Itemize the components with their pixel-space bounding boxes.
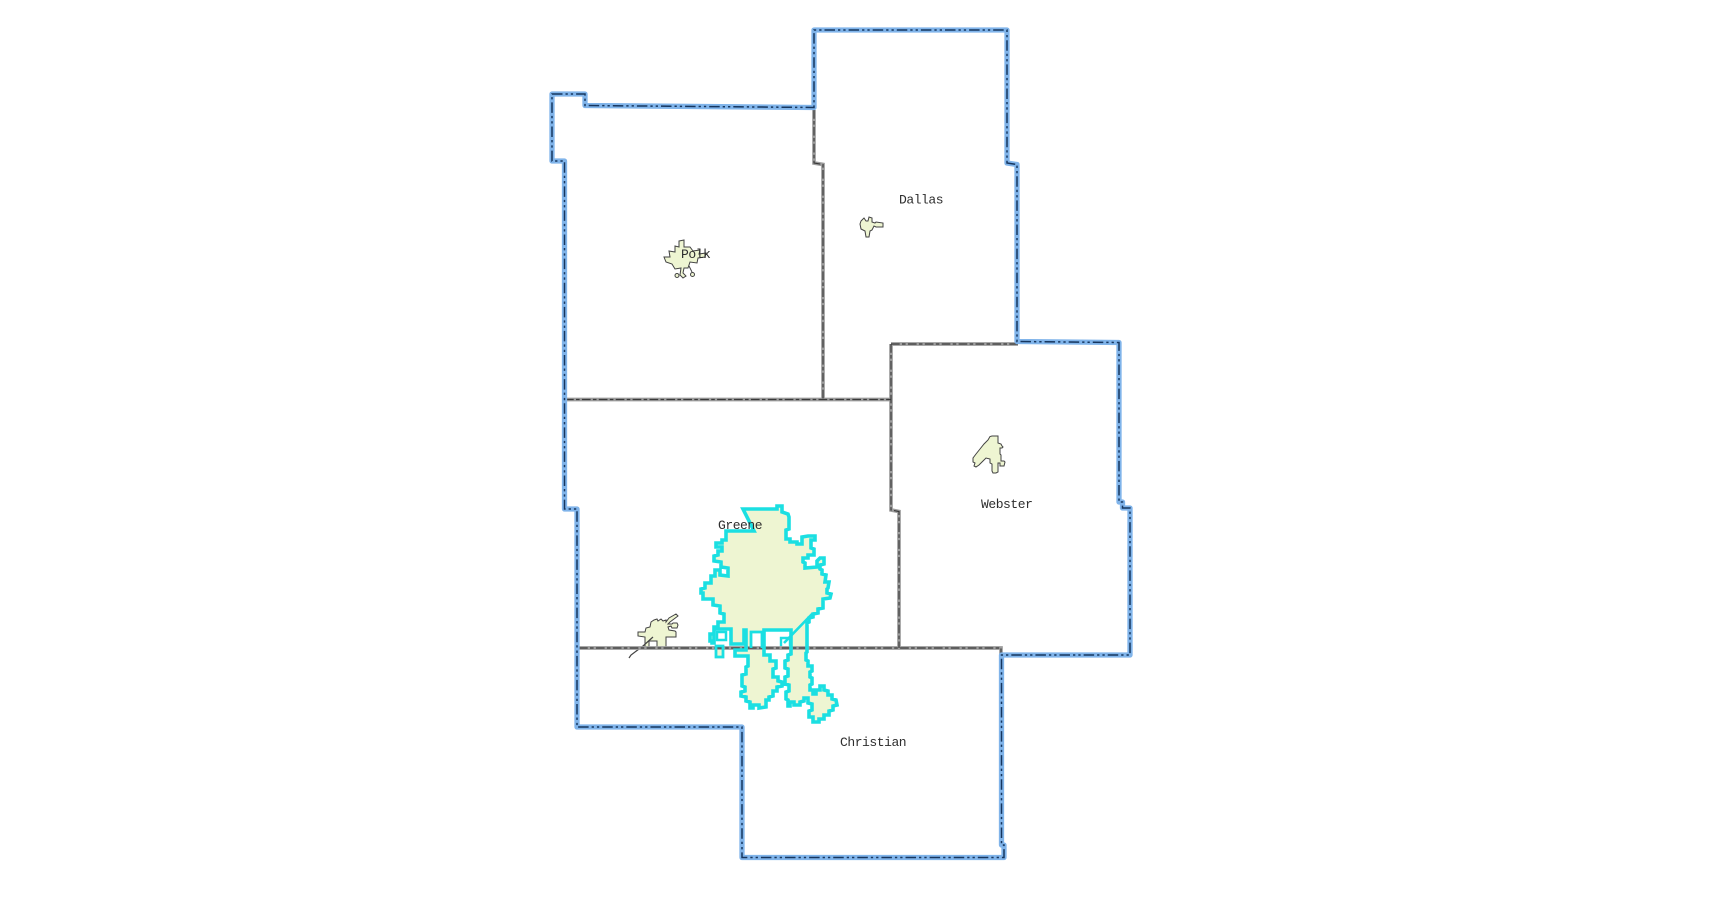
svg-text:Polk: Polk <box>681 247 711 262</box>
svg-text:Webster: Webster <box>981 497 1032 512</box>
svg-text:Christian: Christian <box>840 735 906 750</box>
svg-text:Dallas: Dallas <box>899 193 943 208</box>
svg-text:Greene: Greene <box>718 518 762 533</box>
